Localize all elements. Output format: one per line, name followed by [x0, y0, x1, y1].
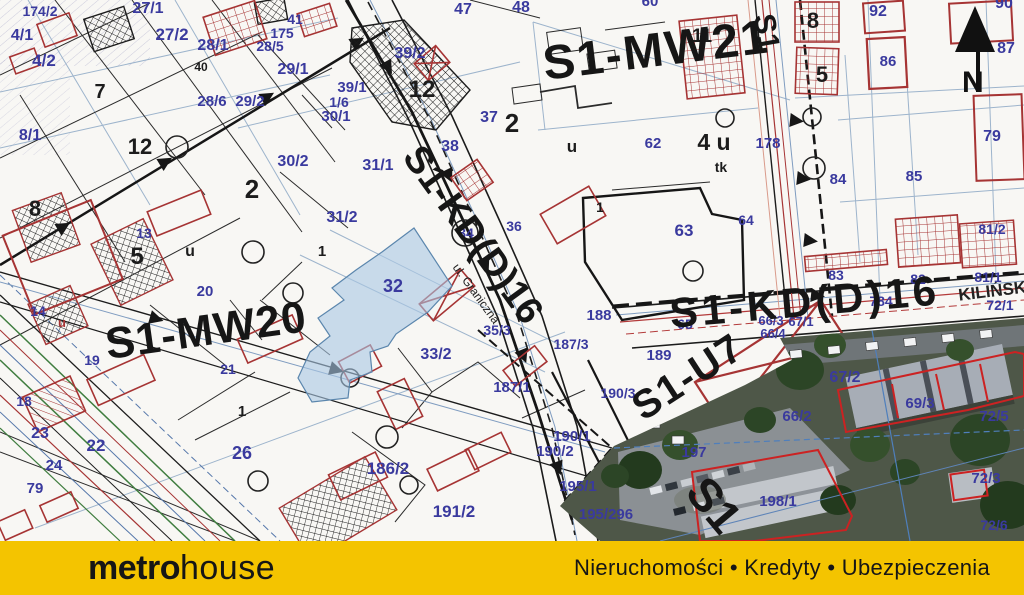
parcel-number: 188 — [586, 307, 611, 324]
map-annotation: u — [185, 243, 195, 260]
listing-banner: ul. GranicznaKILIŃSKIEGO 174/227/14/14/2… — [0, 0, 1024, 595]
parcel-number: 195/1 — [559, 478, 597, 495]
parcel-number: 33/2 — [420, 346, 451, 363]
parcel-number: 189 — [646, 347, 671, 364]
parcel-number: 38 — [441, 138, 459, 155]
parcel-number: 81/2 — [978, 221, 1005, 237]
parcel-number: 92 — [869, 3, 887, 20]
parcel-number: 4/2 — [32, 51, 56, 70]
parcel-number: 69/3 — [905, 395, 934, 412]
parcel-number: 18 — [16, 393, 32, 409]
parcel-number: 62 — [645, 135, 662, 152]
parcel-number: 191/2 — [433, 502, 476, 521]
footer-bar: metrohouse Nieruchomości • Kredyty • Ube… — [0, 541, 1024, 595]
map-annotation: 4 u — [697, 129, 730, 155]
parcel-number: 63 — [675, 221, 694, 240]
parcel-number: 35/3 — [483, 322, 510, 338]
map-annotation: 1 — [596, 199, 604, 215]
parcel-number: 36 — [506, 218, 522, 234]
north-letter: N — [962, 66, 984, 99]
map-annotation: 5 — [816, 62, 828, 87]
parcel-number: 64 — [738, 212, 754, 228]
parcel-number: 31/2 — [326, 209, 357, 226]
parcel-number: 23 — [31, 425, 49, 442]
logo-metro: metro — [88, 549, 180, 587]
parcel-number: 187/3 — [553, 336, 588, 352]
parcel-number: 4/1 — [11, 27, 33, 44]
parcel-number: 14 — [30, 303, 46, 319]
parcel-number: 79 — [27, 480, 44, 497]
parcel-number: 79 — [983, 128, 1001, 145]
parcel-number: 186/2 — [367, 459, 410, 478]
map-annotation: 5 — [130, 243, 143, 270]
parcel-number: 27/2 — [155, 25, 188, 44]
map-annotation: 12 — [128, 134, 152, 159]
logo-house: house — [180, 549, 275, 587]
zoning-map: ul. GranicznaKILIŃSKIEGO 174/227/14/14/2… — [0, 0, 1024, 541]
parcel-number: 28/1 — [197, 37, 228, 54]
parcel-number: 22 — [87, 436, 106, 455]
parcel-number: 84 — [830, 171, 847, 188]
parcel-number: 90 — [995, 0, 1013, 12]
parcel-number: 26 — [232, 443, 252, 463]
map-annotation: 2 — [245, 174, 259, 204]
map-annotation: 1 — [238, 403, 246, 420]
map-annotation: 40 — [194, 60, 208, 74]
parcel-number: 72/1 — [986, 297, 1013, 313]
parcel-number: 28/5 — [256, 38, 283, 54]
parcel-number: 72/5 — [979, 408, 1008, 425]
parcel-number: 86 — [880, 53, 897, 70]
map-annotation: 12 — [409, 76, 436, 103]
metrohouse-logo: metrohouse — [88, 549, 275, 588]
parcel-number: 37 — [480, 109, 498, 126]
map-annotation: u — [58, 315, 66, 330]
parcel-number: 197 — [681, 444, 706, 461]
parcel-number: 20 — [197, 283, 214, 300]
parcel-number: 67/2 — [829, 369, 860, 386]
parcel-number: 39/2 — [394, 45, 425, 62]
map-canvas: ul. GranicznaKILIŃSKIEGO 174/227/14/14/2… — [0, 0, 1024, 541]
parcel-number: 28/6 — [197, 93, 226, 110]
map-annotation: 8 — [807, 8, 819, 33]
parcel-number: 178 — [755, 135, 780, 152]
parcel-number: 29/2 — [235, 93, 264, 110]
map-annotation: 2 — [505, 108, 519, 138]
map-annotation: tk — [715, 159, 728, 175]
parcel-number: 85 — [906, 168, 923, 185]
map-annotation: 7 — [94, 81, 105, 103]
parcel-number: 190/2 — [536, 443, 574, 460]
parcel-number: 66/2 — [782, 408, 811, 425]
parcel-number: 13 — [136, 225, 152, 241]
parcel-number: 31/1 — [362, 157, 393, 174]
parcel-number: 27/1 — [132, 0, 163, 17]
map-annotation: 8 — [29, 196, 41, 221]
parcel-number: 24 — [46, 457, 63, 474]
parcel-number: 47 — [454, 1, 472, 18]
parcel-number: 8/1 — [19, 127, 41, 144]
parcel-number: 29/1 — [277, 61, 308, 78]
parcel-number: 72/3 — [971, 470, 1000, 487]
parcel-number: 81/1 — [974, 269, 1001, 285]
parcel-number: 30/1 — [321, 108, 350, 125]
map-annotation: u — [567, 137, 577, 156]
zone-label: S1 — [747, 11, 786, 53]
parcel-number: 87 — [997, 40, 1015, 57]
parcel-number: 19 — [84, 352, 100, 368]
parcel-number: 30/2 — [277, 153, 308, 170]
parcel-number: 21 — [220, 361, 236, 377]
parcel-number: 48 — [512, 0, 530, 16]
parcel-number: 198/1 — [759, 493, 797, 510]
map-annotation: 1 — [318, 243, 326, 260]
parcel-number: 187/1 — [493, 379, 531, 396]
footer-tagline: Nieruchomości • Kredyty • Ubezpieczenia — [574, 555, 990, 581]
parcel-number: 32 — [383, 276, 403, 296]
parcel-number: 72/6 — [980, 517, 1007, 533]
parcel-number: 60 — [642, 0, 659, 10]
parcel-number: 195/296 — [579, 506, 633, 523]
parcel-number: 174/2 — [22, 3, 57, 19]
